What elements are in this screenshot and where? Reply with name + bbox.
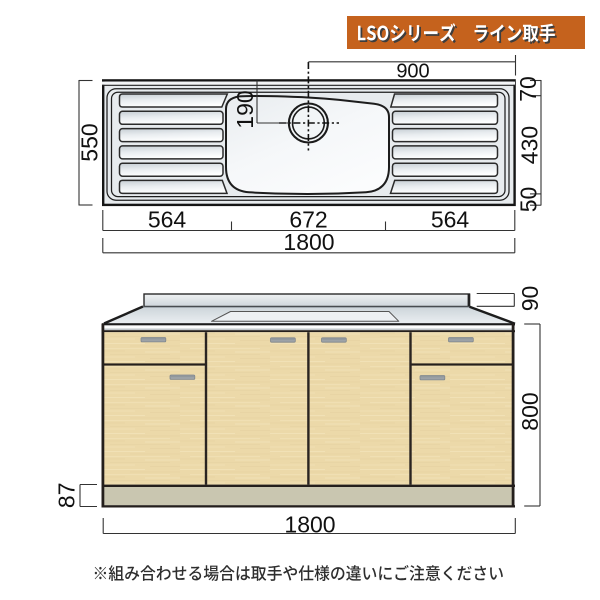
svg-text:190: 190 — [232, 90, 258, 128]
svg-text:900: 900 — [396, 60, 429, 82]
svg-text:90: 90 — [517, 286, 543, 312]
svg-text:1800: 1800 — [283, 229, 334, 255]
svg-text:87: 87 — [54, 483, 80, 509]
svg-text:550: 550 — [76, 123, 102, 161]
svg-text:800: 800 — [517, 392, 543, 430]
svg-text:1800: 1800 — [284, 512, 335, 538]
svg-text:50: 50 — [516, 187, 542, 213]
svg-text:564: 564 — [431, 207, 470, 233]
svg-text:564: 564 — [148, 207, 187, 233]
svg-text:70: 70 — [515, 76, 541, 102]
svg-text:430: 430 — [517, 126, 543, 164]
